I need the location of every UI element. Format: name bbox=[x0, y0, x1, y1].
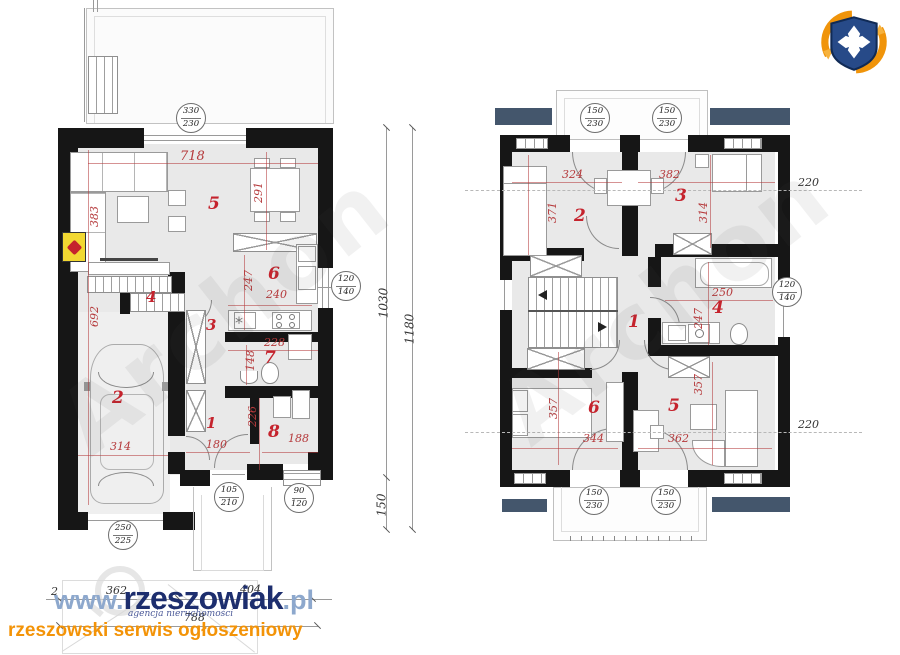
circle-value: 230 bbox=[183, 119, 199, 130]
room-label: 8 bbox=[268, 422, 280, 442]
toilet bbox=[730, 323, 748, 345]
drawing-line bbox=[386, 128, 387, 530]
chair bbox=[254, 212, 270, 222]
room-label: 1 bbox=[206, 414, 216, 432]
fireplace-icon bbox=[62, 232, 86, 262]
opening bbox=[724, 473, 762, 484]
opening-size-circle: 250225 bbox=[108, 520, 138, 550]
height-label: 220 bbox=[798, 176, 819, 189]
drawing-element bbox=[700, 262, 769, 286]
dim-label: 240 bbox=[266, 288, 287, 301]
nightstand bbox=[695, 154, 709, 168]
coffee-table bbox=[117, 196, 149, 223]
washbasin bbox=[240, 371, 258, 384]
dim-label: 362 bbox=[668, 432, 689, 445]
dim-label: 250 bbox=[712, 286, 733, 299]
dimension-line bbox=[528, 155, 529, 255]
circle-value: 225 bbox=[115, 536, 131, 547]
opening bbox=[514, 473, 546, 484]
dim-label: 226 bbox=[246, 406, 259, 427]
sofa bbox=[70, 152, 168, 192]
burner-dot bbox=[276, 322, 282, 328]
chair bbox=[280, 212, 296, 222]
circle-value: 230 bbox=[586, 501, 602, 512]
circle-value: 150 bbox=[657, 107, 677, 119]
circle-value: 90 bbox=[292, 487, 307, 499]
opening-size-circle: 150230 bbox=[580, 103, 610, 133]
roof-strip bbox=[495, 108, 552, 125]
room-label: 4 bbox=[146, 288, 156, 306]
wall bbox=[58, 512, 88, 530]
tv-stand bbox=[88, 262, 170, 275]
dim-label: 382 bbox=[659, 168, 680, 181]
opening-size-circle: 150230 bbox=[579, 485, 609, 515]
chair bbox=[594, 178, 607, 194]
terrace-bench bbox=[88, 56, 118, 114]
dimension-line bbox=[244, 255, 245, 330]
dim-chain-label: 150 bbox=[374, 494, 388, 517]
boiler bbox=[273, 396, 291, 418]
terrace-sliding-door bbox=[144, 132, 246, 144]
site-logo-subtitle: agencja nieruchomości bbox=[128, 609, 233, 619]
wall bbox=[648, 257, 661, 287]
wall bbox=[120, 290, 130, 314]
dashed-height-line bbox=[465, 190, 500, 191]
drawing-element bbox=[100, 394, 154, 470]
drawing-element bbox=[67, 240, 83, 256]
closet bbox=[606, 382, 624, 442]
dashed-height-line bbox=[465, 432, 500, 433]
dim-label: 357 bbox=[547, 398, 560, 419]
drawing-element bbox=[818, 6, 890, 78]
dim-label: 314 bbox=[697, 202, 710, 223]
site-tagline: rzeszowski serwis ogłoszeniowy bbox=[8, 620, 303, 642]
drawing-line bbox=[212, 474, 245, 475]
wall bbox=[163, 512, 195, 530]
drawing-line bbox=[144, 140, 246, 141]
dimension-line bbox=[259, 398, 260, 470]
opening-size-circle: 90120 bbox=[284, 483, 314, 513]
dim-label: 383 bbox=[88, 206, 101, 227]
circle-value: 120 bbox=[777, 281, 797, 293]
wardrobe bbox=[530, 255, 582, 277]
dim-label: 228 bbox=[264, 336, 285, 349]
dimension-line bbox=[708, 262, 709, 345]
dim-label: 291 bbox=[252, 182, 265, 203]
dim-label: 324 bbox=[562, 168, 583, 181]
height-label: 220 bbox=[798, 418, 819, 431]
drawing-line bbox=[328, 268, 329, 308]
room-label: 3 bbox=[206, 316, 216, 334]
circle-value: 120 bbox=[336, 275, 356, 287]
pillow bbox=[512, 390, 528, 412]
site-logo-www: www. bbox=[54, 585, 124, 615]
wardrobe bbox=[186, 310, 206, 384]
drawing-element bbox=[298, 246, 316, 262]
dim-label: 188 bbox=[288, 432, 309, 445]
dimension-line bbox=[228, 305, 312, 306]
dim-label: 357 bbox=[692, 374, 705, 395]
opening-size-circle: 120140 bbox=[331, 271, 361, 301]
circle-value: 230 bbox=[587, 119, 603, 130]
wall bbox=[180, 470, 210, 486]
dimension-line bbox=[638, 448, 772, 449]
room-label: 5 bbox=[668, 396, 680, 416]
side-table bbox=[168, 216, 186, 232]
stair-arrow bbox=[538, 290, 547, 300]
burner-dot bbox=[695, 329, 704, 338]
drawing-line bbox=[528, 310, 618, 312]
wc-cabinet bbox=[288, 334, 312, 360]
room-label: 6 bbox=[268, 264, 280, 284]
stairs bbox=[130, 293, 185, 312]
opening bbox=[724, 138, 762, 149]
dimension-line bbox=[512, 448, 618, 449]
wall bbox=[620, 470, 640, 487]
wardrobe bbox=[186, 390, 206, 432]
drawing-element bbox=[94, 16, 326, 123]
roof-strip bbox=[712, 497, 790, 512]
room-label: 1 bbox=[628, 312, 640, 332]
dim-label: 148 bbox=[244, 350, 257, 371]
site-logo-tld: .pl bbox=[282, 585, 314, 615]
roof-strip bbox=[502, 499, 547, 512]
wardrobe bbox=[673, 233, 712, 255]
sofa bbox=[725, 390, 758, 467]
dim-label: 718 bbox=[180, 149, 205, 164]
first-floor-plan: 220 220 2 3 1 4 6 5 324 382 371 314 250 … bbox=[450, 0, 900, 655]
dim-label: 247 bbox=[242, 270, 255, 291]
circle-value: 230 bbox=[658, 501, 674, 512]
vertical-dim-chain: 1030 1180 150 bbox=[350, 0, 450, 655]
desk bbox=[607, 170, 651, 206]
circle-value: 250 bbox=[113, 524, 133, 536]
room-label: 4 bbox=[712, 298, 724, 318]
dim-chain-label: 1030 bbox=[376, 288, 390, 319]
circle-value: 120 bbox=[291, 499, 307, 510]
dim-label: 180 bbox=[206, 438, 227, 451]
circle-value: 330 bbox=[181, 107, 201, 119]
drawing-line bbox=[162, 382, 168, 391]
roof-strip bbox=[710, 108, 790, 125]
furnace bbox=[292, 390, 310, 419]
dimension-line bbox=[712, 362, 713, 465]
drawing-line bbox=[144, 135, 246, 136]
window bbox=[500, 280, 512, 310]
opening-size-circle: 105210 bbox=[214, 482, 244, 512]
drawing-line bbox=[504, 280, 505, 310]
dimension-line bbox=[78, 455, 168, 456]
tv bbox=[100, 258, 158, 261]
room-label: 2 bbox=[574, 206, 586, 226]
floor-plan-sheet: * bbox=[0, 0, 900, 655]
circle-value: 150 bbox=[584, 489, 604, 501]
drawing-line bbox=[318, 287, 331, 288]
dim-label: 692 bbox=[88, 306, 101, 327]
room-label: 6 bbox=[588, 398, 600, 418]
dim-label: 371 bbox=[546, 202, 559, 223]
drawing-line bbox=[97, 0, 98, 12]
bath-sink bbox=[668, 325, 686, 341]
circle-value: 210 bbox=[221, 498, 237, 509]
circle-value: 230 bbox=[659, 119, 675, 130]
burner-dot bbox=[276, 314, 282, 320]
shield-cross-logo bbox=[818, 6, 890, 78]
drawing-line bbox=[84, 8, 85, 122]
dimension-line bbox=[262, 452, 318, 453]
dimension-line bbox=[266, 152, 267, 250]
stair-arrow bbox=[598, 322, 607, 332]
drawing-element bbox=[560, 536, 698, 541]
drawing-element bbox=[298, 266, 316, 290]
opening bbox=[516, 138, 548, 149]
circle-value: 150 bbox=[656, 489, 676, 501]
drawing-line bbox=[84, 382, 90, 391]
wall bbox=[620, 135, 640, 152]
wall bbox=[247, 464, 283, 480]
opening-size-circle: 330230 bbox=[176, 103, 206, 133]
burner-dot bbox=[289, 322, 295, 328]
dimension-line bbox=[710, 155, 711, 248]
stairs bbox=[87, 276, 172, 293]
circle-value: 140 bbox=[779, 293, 795, 304]
drawing-line bbox=[322, 268, 323, 308]
opening-size-circle: 120140 bbox=[772, 277, 802, 307]
kitchen-sink: * bbox=[234, 312, 256, 329]
dimension-line bbox=[88, 150, 89, 505]
dim-label: 344 bbox=[583, 432, 604, 445]
pillow bbox=[746, 154, 762, 192]
circle-value: 140 bbox=[338, 287, 354, 298]
room-label: 2 bbox=[112, 388, 124, 408]
side-table bbox=[168, 190, 186, 206]
dimension-line bbox=[186, 452, 250, 453]
dim-label: 314 bbox=[110, 440, 131, 453]
wardrobe bbox=[527, 348, 585, 370]
room-label: 3 bbox=[675, 186, 687, 206]
dim-chain-label: 1180 bbox=[402, 314, 416, 345]
opening-size-circle: 150230 bbox=[652, 103, 682, 133]
circle-value: 105 bbox=[219, 486, 239, 498]
room-label: 5 bbox=[208, 194, 220, 214]
burner-dot bbox=[289, 314, 295, 320]
drawing-line bbox=[93, 0, 94, 12]
opening-size-circle: 150230 bbox=[651, 485, 681, 515]
dim-label: 247 bbox=[692, 308, 705, 329]
dimension-line bbox=[638, 182, 775, 183]
circle-value: 150 bbox=[585, 107, 605, 119]
room-label: 7 bbox=[264, 348, 276, 368]
